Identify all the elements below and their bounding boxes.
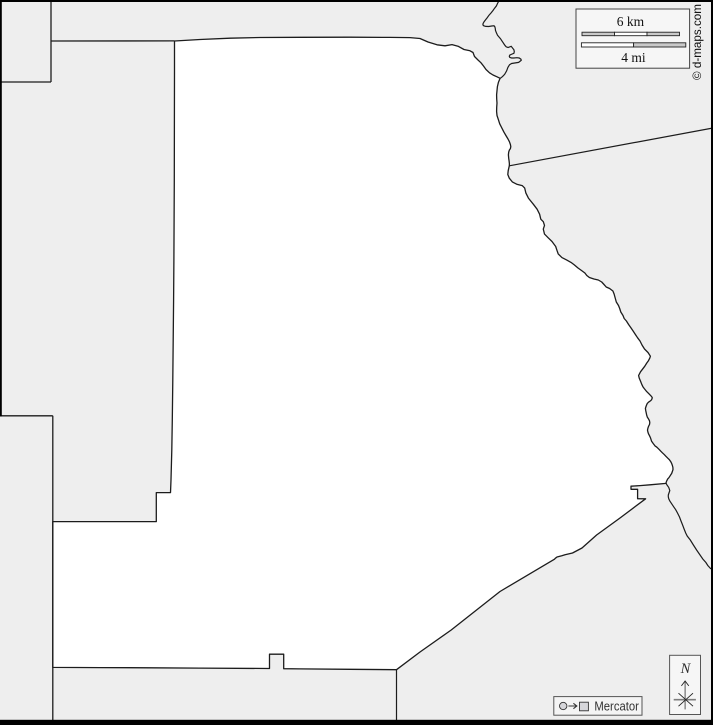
- svg-text:6 km: 6 km: [617, 14, 645, 29]
- svg-text:4 mi: 4 mi: [621, 50, 646, 65]
- svg-text:Mercator: Mercator: [594, 699, 639, 714]
- svg-text:© d-maps.com: © d-maps.com: [690, 4, 704, 80]
- svg-text:N: N: [680, 661, 692, 677]
